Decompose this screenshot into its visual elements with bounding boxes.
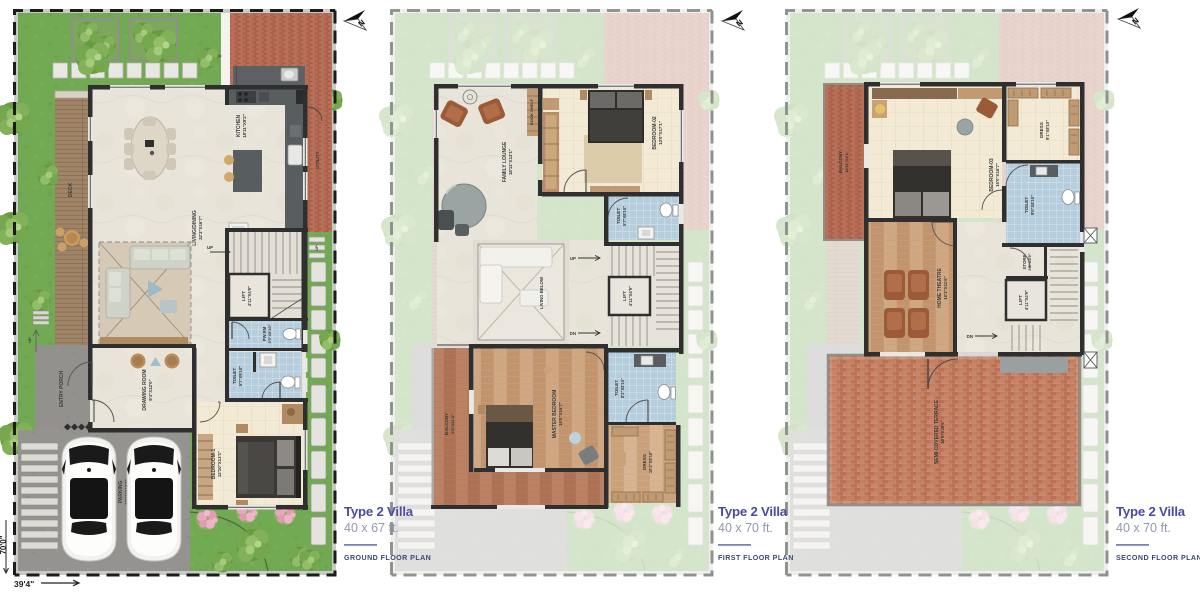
svg-text:Type 2 Villa: Type 2 Villa — [344, 504, 414, 519]
svg-text:70'0": 70'0" — [0, 535, 8, 554]
svg-text:4'11"X4'9": 4'11"X4'9" — [628, 286, 633, 306]
svg-text:UP: UP — [207, 245, 213, 250]
svg-text:9'0"X8'10": 9'0"X8'10" — [1030, 195, 1035, 215]
svg-text:15'0"X16'7": 15'0"X16'7" — [558, 402, 563, 426]
svg-text:BALCONY: BALCONY — [838, 151, 843, 173]
svg-text:UP: UP — [570, 256, 576, 261]
svg-text:TOILET: TOILET — [232, 368, 237, 384]
svg-text:18'11"X13'1": 18'11"X13'1" — [508, 149, 513, 175]
svg-text:4'11"X4'9": 4'11"X4'9" — [247, 286, 252, 306]
svg-text:SECOND FLOOR PLAN: SECOND FLOOR PLAN — [1116, 554, 1200, 562]
svg-text:BOOK SHELF: BOOK SHELF — [529, 98, 534, 125]
svg-text:BALCONY: BALCONY — [444, 413, 449, 435]
svg-text:40 x 70 ft.: 40 x 70 ft. — [718, 521, 773, 535]
svg-text:Type 2 Villa: Type 2 Villa — [718, 504, 788, 519]
svg-text:DRESS: DRESS — [1039, 122, 1044, 138]
svg-text:DECK: DECK — [68, 183, 74, 198]
svg-text:39'4": 39'4" — [14, 579, 34, 589]
svg-text:18'11"X9'2": 18'11"X9'2" — [242, 114, 247, 138]
svg-text:32'3"X16'7": 32'3"X16'7" — [198, 216, 203, 240]
svg-text:3'5"X21'4": 3'5"X21'4" — [450, 414, 455, 434]
svg-text:FIRST FLOOR PLAN: FIRST FLOOR PLAN — [718, 554, 794, 562]
svg-text:9'4"X12'0": 9'4"X12'0" — [148, 379, 153, 400]
svg-text:Type 2 Villa: Type 2 Villa — [1116, 504, 1186, 519]
svg-text:18'11"X4'1": 18'11"X4'1" — [844, 151, 849, 173]
svg-text:TOILET: TOILET — [616, 208, 621, 224]
svg-text:3'5"X4'9": 3'5"X4'9" — [1027, 253, 1032, 270]
svg-text:DN: DN — [967, 334, 973, 339]
svg-text:10'3"X8'10": 10'3"X8'10" — [648, 451, 653, 473]
svg-text:UTILITY: UTILITY — [315, 151, 320, 168]
svg-text:15'0"X16'7": 15'0"X16'7" — [995, 163, 1000, 187]
svg-text:5'7"X8'10": 5'7"X8'10" — [622, 206, 627, 226]
svg-text:TOILET: TOILET — [1024, 197, 1029, 213]
svg-text:4'11"X4'9": 4'11"X4'9" — [1024, 290, 1029, 310]
svg-text:13'0"X17'1": 13'0"X17'1" — [658, 121, 663, 145]
svg-text:5'7"X9'10": 5'7"X9'10" — [238, 366, 243, 386]
svg-text:GROUND FLOOR PLAN: GROUND FLOOR PLAN — [344, 554, 431, 562]
svg-text:ENTRY PORCH: ENTRY PORCH — [59, 371, 65, 408]
svg-text:TOILET: TOILET — [614, 380, 619, 396]
svg-text:UP: UP — [314, 245, 319, 251]
svg-text:18'9"X30'6": 18'9"X30'6" — [940, 420, 945, 444]
svg-text:9'1"X8'10": 9'1"X8'10" — [1045, 120, 1050, 140]
svg-text:40 x 67 ft.: 40 x 67 ft. — [344, 521, 399, 535]
svg-text:16'3"X11'6": 16'3"X11'6" — [943, 276, 948, 300]
svg-text:12'10"X13'1": 12'10"X13'1" — [217, 451, 222, 477]
svg-text:3'5"X8'10": 3'5"X8'10" — [267, 324, 272, 343]
svg-text:DN: DN — [570, 331, 576, 336]
svg-text:8'2"X8'10": 8'2"X8'10" — [620, 378, 625, 398]
svg-text:LIVING BELOW: LIVING BELOW — [539, 276, 544, 309]
svg-text:40 x 70 ft.: 40 x 70 ft. — [1116, 521, 1171, 535]
svg-text:DRESS: DRESS — [642, 454, 647, 470]
svg-text:UP: UP — [27, 337, 32, 343]
